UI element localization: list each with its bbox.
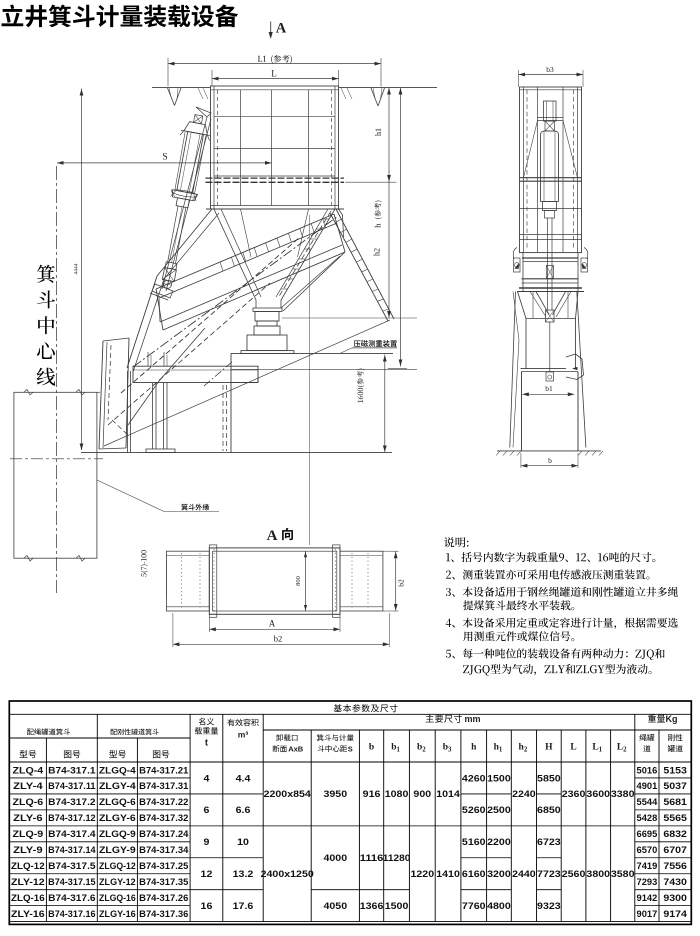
- svg-text:5428: 5428: [637, 812, 658, 823]
- svg-text:9300: 9300: [663, 892, 687, 903]
- svg-text:B74-317.1: B74-317.1: [48, 765, 95, 775]
- svg-text:mm: mm: [465, 714, 481, 724]
- svg-text:2500: 2500: [487, 804, 511, 815]
- svg-text:B74-317.24: B74-317.24: [139, 829, 189, 839]
- svg-text:B74-317.4: B74-317.4: [48, 829, 96, 839]
- svg-text:2560: 2560: [562, 868, 586, 879]
- svg-text:4444: 4444: [74, 263, 80, 274]
- svg-text:m³: m³: [238, 730, 249, 740]
- svg-text:B74-317.36: B74-317.36: [139, 909, 188, 919]
- svg-text:ZLGY-4: ZLGY-4: [99, 780, 136, 791]
- svg-text:9017: 9017: [637, 908, 658, 919]
- svg-text:1220: 1220: [411, 868, 435, 879]
- svg-text:ZLQ-12: ZLQ-12: [11, 860, 45, 871]
- svg-text:B74-317.11: B74-317.11: [48, 781, 95, 791]
- svg-text:S: S: [162, 153, 167, 163]
- svg-text:3950: 3950: [324, 788, 348, 799]
- svg-text:h2: h2: [519, 743, 528, 754]
- svg-text:5850: 5850: [537, 772, 561, 783]
- svg-text:L: L: [271, 69, 277, 79]
- svg-text:ZLGQ-6: ZLGQ-6: [99, 796, 136, 807]
- svg-text:3600: 3600: [586, 788, 610, 799]
- svg-text:ZLGQ-16: ZLGQ-16: [99, 892, 136, 903]
- svg-text:A: A: [276, 21, 287, 37]
- svg-text:S: S: [348, 745, 353, 754]
- svg-text:ZLGQ-9: ZLGQ-9: [99, 828, 136, 839]
- svg-text:7293: 7293: [637, 876, 658, 887]
- svg-text:1366: 1366: [360, 900, 384, 911]
- svg-text:7419: 7419: [637, 860, 658, 871]
- svg-text:b3: b3: [443, 743, 452, 754]
- svg-text:B74-317.15: B74-317.15: [48, 877, 95, 887]
- svg-text:4260: 4260: [462, 772, 486, 783]
- svg-text:b2: b2: [417, 743, 426, 754]
- svg-text:4: 4: [204, 772, 211, 783]
- svg-text:6570: 6570: [637, 844, 658, 855]
- svg-text:900: 900: [413, 788, 431, 799]
- svg-text:2440: 2440: [512, 868, 536, 879]
- svg-text:4800: 4800: [487, 900, 511, 911]
- svg-text:ZLGY-12: ZLGY-12: [99, 876, 136, 887]
- svg-text:6: 6: [204, 804, 210, 815]
- svg-text:6.6: 6.6: [236, 804, 251, 815]
- svg-text:L2: L2: [617, 743, 627, 754]
- svg-text:ZLY-9: ZLY-9: [13, 844, 43, 855]
- svg-text:7556: 7556: [663, 860, 687, 871]
- svg-text:6695: 6695: [637, 828, 658, 839]
- svg-text:5160: 5160: [462, 836, 486, 847]
- svg-text:B74-317.5: B74-317.5: [48, 861, 95, 871]
- svg-text:B74-317.21: B74-317.21: [139, 765, 188, 775]
- svg-text:3380: 3380: [611, 788, 635, 799]
- svg-text:9: 9: [204, 836, 210, 847]
- svg-text:16: 16: [201, 900, 213, 911]
- svg-text:B74-317.35: B74-317.35: [139, 877, 188, 887]
- svg-text:B74-317.2: B74-317.2: [48, 797, 95, 807]
- svg-text:6723: 6723: [537, 836, 561, 847]
- svg-text:10: 10: [237, 836, 249, 847]
- svg-text:1500: 1500: [385, 900, 409, 911]
- svg-text:ZLGQ-4: ZLGQ-4: [99, 764, 136, 775]
- svg-text:5153: 5153: [663, 764, 687, 775]
- svg-text:ZLQ-16: ZLQ-16: [11, 892, 45, 903]
- svg-text:5681: 5681: [663, 796, 687, 807]
- svg-text:h1: h1: [374, 128, 383, 136]
- svg-text:4050: 4050: [324, 900, 348, 911]
- svg-text:5544: 5544: [637, 796, 658, 807]
- svg-text:h2: h2: [373, 248, 382, 256]
- svg-text:1500: 1500: [487, 772, 511, 783]
- svg-text:b: b: [369, 743, 374, 753]
- svg-text:7760: 7760: [462, 900, 486, 911]
- svg-text:6832: 6832: [663, 828, 687, 839]
- svg-text:6707: 6707: [663, 844, 687, 855]
- svg-text:B74-317.6: B74-317.6: [48, 893, 95, 903]
- svg-text:ZLGY-9: ZLGY-9: [99, 844, 136, 855]
- svg-text:2360: 2360: [562, 788, 586, 799]
- svg-text:9142: 9142: [637, 892, 658, 903]
- svg-text:17.6: 17.6: [233, 900, 254, 911]
- svg-text:h1: h1: [494, 743, 503, 754]
- svg-text:ZLGY-6: ZLGY-6: [99, 812, 136, 823]
- svg-text:3580: 3580: [611, 868, 635, 879]
- svg-text:4.4: 4.4: [236, 772, 252, 783]
- svg-text:b1: b1: [391, 743, 400, 754]
- svg-text:ZLY-12: ZLY-12: [11, 876, 45, 887]
- svg-text:A: A: [267, 528, 278, 544]
- svg-text:b1: b1: [545, 384, 553, 393]
- svg-text:ZLY-16: ZLY-16: [11, 908, 45, 919]
- svg-text:A: A: [269, 619, 276, 629]
- svg-text:2200x854: 2200x854: [264, 788, 312, 799]
- svg-text:1116: 1116: [360, 852, 384, 863]
- svg-text:ZLQ-6: ZLQ-6: [13, 796, 44, 807]
- svg-text:4000: 4000: [324, 852, 348, 863]
- svg-text:ZLQ-4: ZLQ-4: [13, 764, 45, 775]
- svg-text:12: 12: [201, 868, 213, 879]
- svg-text:L1: L1: [592, 743, 602, 754]
- svg-text:B74-317.14: B74-317.14: [48, 845, 96, 855]
- svg-text:h: h: [471, 743, 477, 753]
- svg-text:5565: 5565: [663, 812, 687, 823]
- svg-text:t: t: [205, 738, 209, 749]
- svg-text:5037: 5037: [663, 780, 687, 791]
- svg-text:Kg: Kg: [666, 714, 678, 724]
- svg-text:9323: 9323: [537, 900, 561, 911]
- svg-text:2200: 2200: [487, 836, 511, 847]
- svg-text:b3: b3: [546, 65, 554, 74]
- svg-text:2240: 2240: [512, 788, 536, 799]
- svg-text:7430: 7430: [663, 876, 687, 887]
- svg-text:ZLGQ-12: ZLGQ-12: [99, 860, 136, 871]
- svg-text:1410: 1410: [436, 868, 460, 879]
- svg-text:3200: 3200: [487, 868, 511, 879]
- svg-text:B74-317.12: B74-317.12: [48, 813, 95, 823]
- svg-text:7723: 7723: [537, 868, 561, 879]
- svg-text:ZLQ-9: ZLQ-9: [13, 828, 44, 839]
- svg-text:ZLY-4: ZLY-4: [13, 780, 43, 791]
- svg-text:AxB: AxB: [288, 745, 304, 754]
- svg-text:B74-317.22: B74-317.22: [139, 797, 188, 807]
- svg-text:ZLGY-16: ZLGY-16: [99, 908, 136, 919]
- svg-text:B74-317.26: B74-317.26: [139, 893, 188, 903]
- svg-text:1014: 1014: [436, 788, 460, 799]
- svg-text:b: b: [548, 456, 552, 465]
- svg-text:5016: 5016: [637, 764, 658, 775]
- svg-text:11280: 11280: [383, 853, 411, 863]
- svg-text:b2: b2: [274, 634, 283, 644]
- svg-text:9174: 9174: [663, 908, 687, 919]
- svg-text:13.2: 13.2: [233, 868, 254, 879]
- svg-text:B74-317.16: B74-317.16: [48, 909, 95, 919]
- svg-text:6850: 6850: [537, 804, 561, 815]
- svg-text:B74-317.31: B74-317.31: [139, 781, 188, 791]
- svg-text:1080: 1080: [385, 788, 409, 799]
- svg-text:5260: 5260: [462, 804, 486, 815]
- svg-text:B74-317.34: B74-317.34: [139, 845, 189, 855]
- svg-text:H: H: [545, 743, 553, 753]
- svg-text:4901: 4901: [637, 780, 658, 791]
- svg-text:b2: b2: [397, 579, 406, 587]
- svg-text:L: L: [570, 743, 576, 753]
- svg-text:916: 916: [363, 788, 381, 799]
- svg-text:2400x1250: 2400x1250: [261, 868, 314, 879]
- svg-text:800: 800: [295, 576, 302, 586]
- svg-text:3800: 3800: [586, 868, 610, 879]
- svg-text:6160: 6160: [462, 868, 486, 879]
- svg-text:B74-317.25: B74-317.25: [139, 861, 188, 871]
- svg-text:ZLY-6: ZLY-6: [13, 812, 43, 823]
- svg-text:B74-317.32: B74-317.32: [139, 813, 188, 823]
